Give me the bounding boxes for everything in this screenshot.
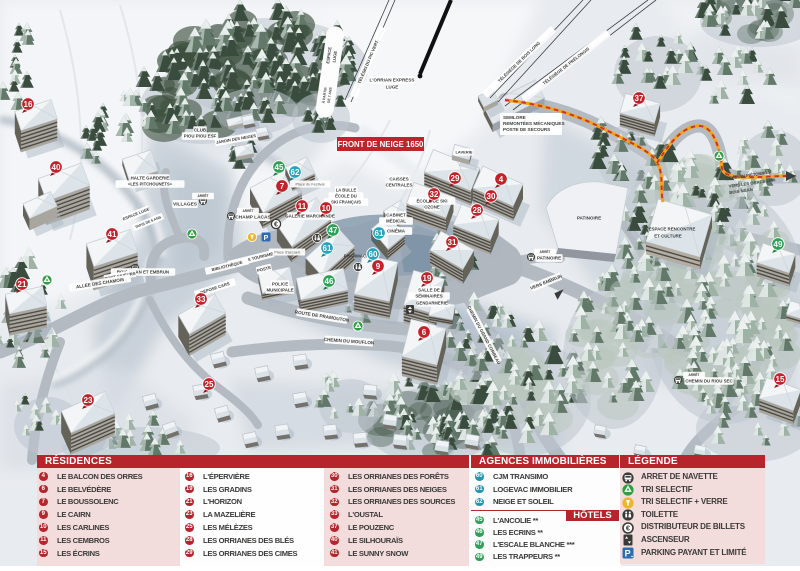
svg-text:PIOU PIOU ESF: PIOU PIOU ESF bbox=[184, 134, 217, 139]
svg-text:VILLAGES: VILLAGES bbox=[173, 202, 198, 208]
svg-text:62: 62 bbox=[291, 168, 300, 177]
svg-text:47: 47 bbox=[329, 226, 338, 235]
svg-text:PATINOIRE: PATINOIRE bbox=[537, 256, 561, 261]
svg-text:21: 21 bbox=[18, 280, 27, 289]
svg-text:23: 23 bbox=[84, 396, 93, 405]
svg-text:PATINOIRE: PATINOIRE bbox=[577, 216, 601, 221]
svg-text:9: 9 bbox=[376, 262, 381, 271]
svg-text:19: 19 bbox=[423, 274, 432, 283]
svg-text:MÉDICAL: MÉDICAL bbox=[386, 219, 406, 224]
svg-text:P: P bbox=[264, 235, 269, 242]
svg-text:61: 61 bbox=[323, 244, 332, 253]
svg-text:CENTRALES: CENTRALES bbox=[386, 183, 413, 188]
svg-text:CLUB: CLUB bbox=[194, 128, 206, 133]
svg-text:P: P bbox=[625, 548, 631, 558]
svg-text:POSTE DE SECOURS: POSTE DE SECOURS bbox=[503, 127, 550, 132]
svg-text:Place d'accueil: Place d'accueil bbox=[274, 250, 299, 254]
svg-text:37: 37 bbox=[635, 94, 644, 103]
svg-text:25: 25 bbox=[205, 380, 214, 389]
svg-text:FRONT DE NEIGE 1650: FRONT DE NEIGE 1650 bbox=[338, 140, 424, 149]
svg-text:CAISSES: CAISSES bbox=[389, 177, 408, 182]
svg-text:11: 11 bbox=[298, 202, 307, 211]
svg-text:60: 60 bbox=[369, 250, 378, 259]
svg-text:ÉCOLE DU: ÉCOLE DU bbox=[335, 194, 357, 199]
svg-text:LUGE: LUGE bbox=[386, 85, 399, 90]
svg-text:ARRÊT: ARRÊT bbox=[540, 249, 551, 254]
svg-text:45: 45 bbox=[275, 163, 284, 172]
svg-text:7: 7 bbox=[280, 182, 285, 191]
svg-text:SÉMINAIRES: SÉMINAIRES bbox=[415, 294, 442, 299]
svg-text:31: 31 bbox=[448, 238, 457, 247]
svg-text:CABINET: CABINET bbox=[386, 213, 406, 218]
svg-text:61: 61 bbox=[375, 229, 384, 238]
svg-text:Place du Festival: Place du Festival bbox=[296, 182, 325, 186]
svg-text:ARRÊT: ARRÊT bbox=[689, 372, 700, 377]
svg-text:CHEMIN DU RIOU SEC: CHEMIN DU RIOU SEC bbox=[685, 379, 733, 384]
svg-text:ESPACE RENCONTRE: ESPACE RENCONTRE bbox=[649, 227, 696, 232]
svg-text:41: 41 bbox=[108, 230, 117, 239]
svg-text:REMONTÉES MÉCANIQUES: REMONTÉES MÉCANIQUES bbox=[503, 119, 565, 126]
svg-text:4: 4 bbox=[499, 175, 504, 184]
svg-text:HALTE GARDERIE: HALTE GARDERIE bbox=[131, 176, 170, 181]
svg-text:OZONE: OZONE bbox=[424, 205, 440, 210]
svg-text:28: 28 bbox=[473, 206, 482, 215]
svg-text:30: 30 bbox=[487, 192, 496, 201]
svg-text:29: 29 bbox=[451, 174, 460, 183]
svg-text:ET CULTURE: ET CULTURE bbox=[654, 234, 682, 239]
svg-text:16: 16 bbox=[24, 100, 33, 109]
svg-text:€: € bbox=[274, 222, 278, 229]
svg-text:SKI FRANÇAIS: SKI FRANÇAIS bbox=[331, 200, 361, 205]
svg-text:L'ORRIAN EXPRESS: L'ORRIAN EXPRESS bbox=[370, 78, 415, 83]
svg-text:ARRÊT: ARRÊT bbox=[198, 193, 209, 198]
svg-text:40: 40 bbox=[52, 163, 61, 172]
svg-text:GENDARMERIE: GENDARMERIE bbox=[416, 301, 448, 306]
svg-text:15: 15 bbox=[776, 375, 785, 384]
svg-text:MUNICIPALE: MUNICIPALE bbox=[267, 288, 294, 293]
svg-text:CHAMP LACAS: CHAMP LACAS bbox=[235, 215, 271, 221]
svg-text:10: 10 bbox=[322, 204, 331, 213]
svg-text:SEMLORE: SEMLORE bbox=[503, 115, 526, 120]
svg-text:6: 6 bbox=[422, 328, 427, 337]
svg-text:ARRÊT: ARRÊT bbox=[243, 208, 254, 213]
svg-text:POLICE: POLICE bbox=[272, 282, 288, 287]
svg-text:LAVERIE: LAVERIE bbox=[455, 149, 472, 154]
svg-text:33: 33 bbox=[197, 295, 206, 304]
svg-text:«LES PITCHOUNETS»: «LES PITCHOUNETS» bbox=[128, 182, 173, 187]
svg-text:SALLE DE: SALLE DE bbox=[418, 288, 440, 293]
svg-text:49: 49 bbox=[774, 240, 783, 249]
svg-text:LA BULLE: LA BULLE bbox=[336, 188, 357, 193]
svg-text:32: 32 bbox=[430, 190, 439, 199]
svg-text:46: 46 bbox=[325, 277, 334, 286]
svg-text:CINÉMA: CINÉMA bbox=[387, 227, 406, 234]
